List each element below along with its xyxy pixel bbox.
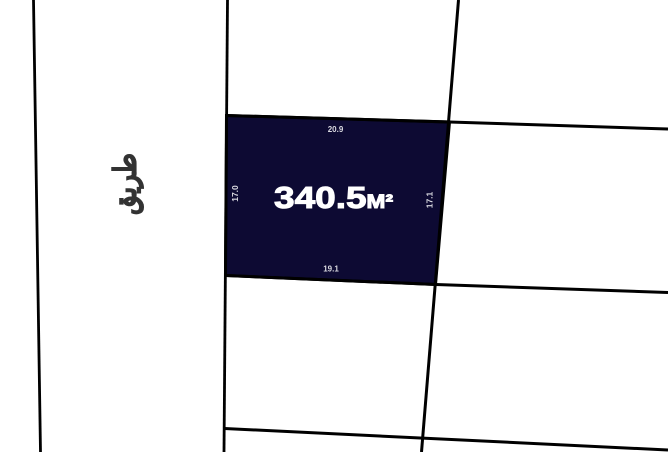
- svg-text:20.9: 20.9: [328, 125, 344, 134]
- svg-text:19.1: 19.1: [323, 265, 339, 274]
- svg-text:طريق: طريق: [108, 153, 144, 214]
- svg-text:17.0: 17.0: [230, 185, 240, 202]
- svg-text:17.1: 17.1: [425, 191, 435, 208]
